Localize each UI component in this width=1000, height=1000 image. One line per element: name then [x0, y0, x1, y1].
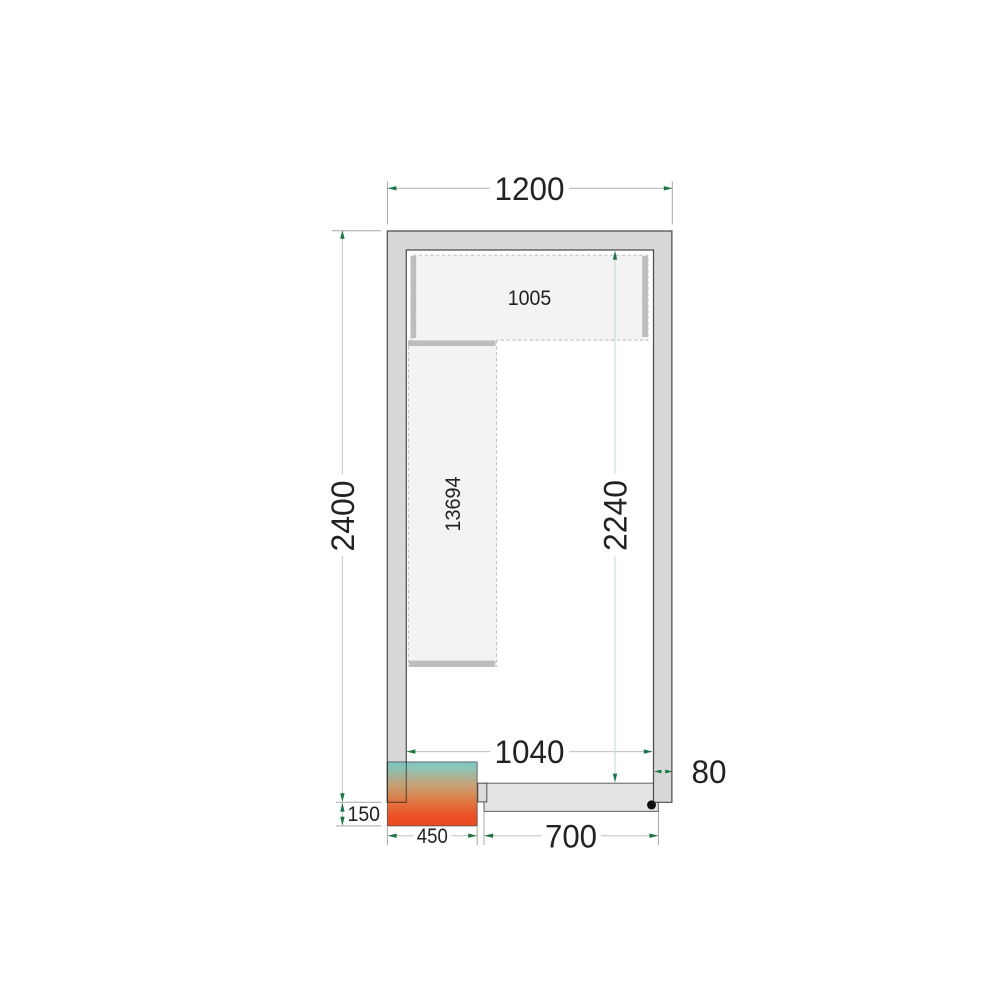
svg-text:700: 700 [545, 818, 597, 854]
svg-text:1040: 1040 [495, 734, 565, 770]
svg-text:80: 80 [692, 754, 727, 790]
svg-text:450: 450 [417, 825, 448, 848]
svg-text:1005: 1005 [508, 287, 552, 310]
svg-text:1200: 1200 [495, 171, 565, 207]
svg-text:2400: 2400 [325, 481, 361, 552]
svg-text:2240: 2240 [598, 480, 634, 551]
svg-text:13694: 13694 [442, 476, 465, 531]
svg-text:150: 150 [348, 803, 381, 826]
